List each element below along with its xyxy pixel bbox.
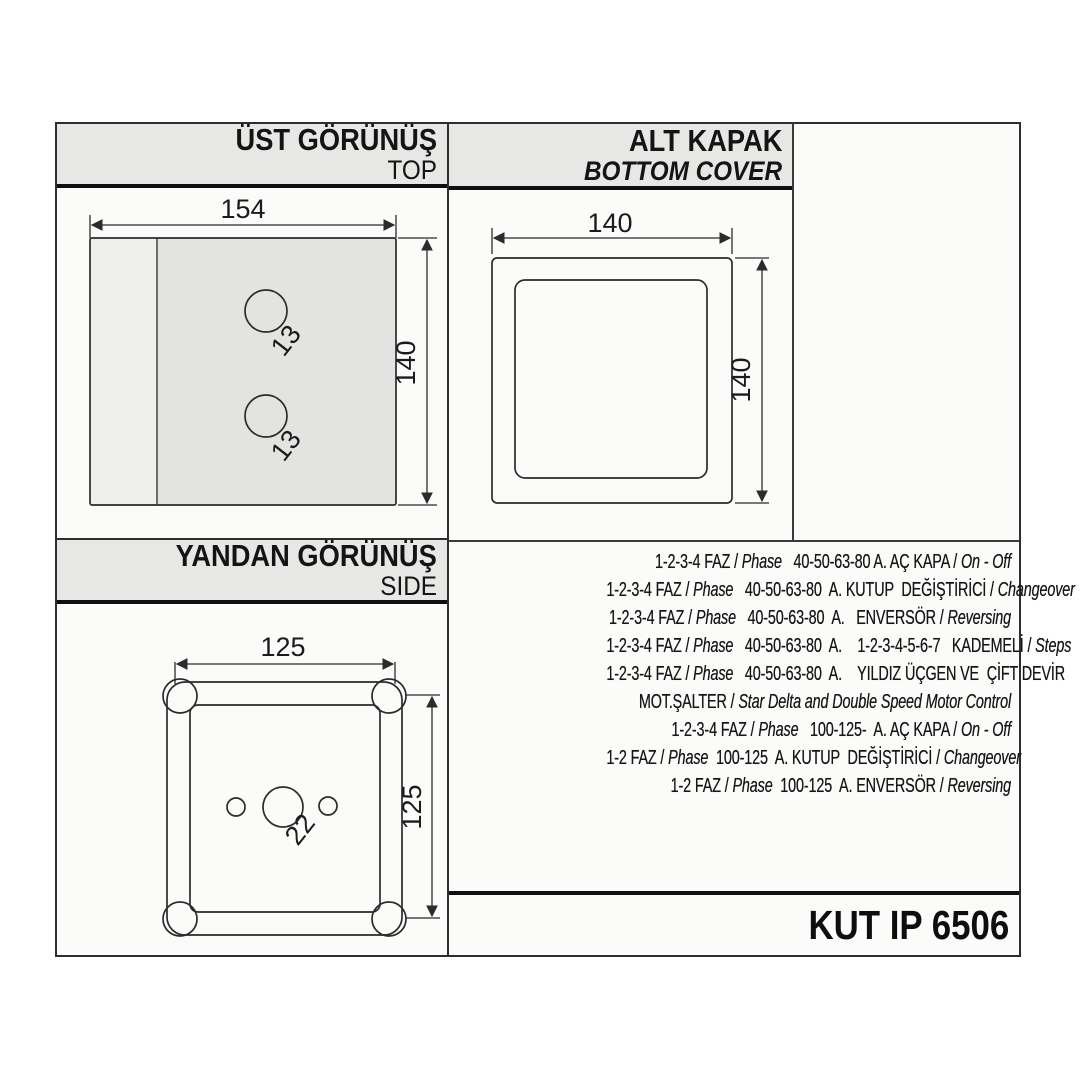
side-view-title: YANDAN GÖRÜNÜŞ xyxy=(176,540,437,572)
side-view-header: YANDAN GÖRÜNÜŞ SIDE xyxy=(57,538,447,604)
spec-lines: 1-2-3-4 FAZ / Phase 40-50-63-80 A. AÇ KA… xyxy=(449,544,1011,888)
bottom-cover-width-label: 140 xyxy=(587,208,632,238)
side-view-width-label: 125 xyxy=(260,632,305,662)
side-view-corner-3 xyxy=(163,902,197,936)
bottom-cover-subtitle: BOTTOM COVER xyxy=(584,157,782,185)
top-view-title: ÜST GÖRÜNÜŞ xyxy=(235,124,437,156)
spec-line: 1-2-3-4 FAZ / Phase 40-50-63-80 A. KUTUP… xyxy=(606,576,1011,604)
spec-line: 1-2-3-4 FAZ / Phase 40-50-63-80 A. YILDI… xyxy=(606,660,1011,688)
spec-line: 1-2 FAZ / Phase 100-125 A. KUTUP DEĞİŞTİ… xyxy=(606,744,1011,772)
model-cell: KUT IP 6506 xyxy=(449,897,1009,953)
side-view-drawing: 22 125 125 xyxy=(55,602,447,955)
side-view-subtitle: SIDE xyxy=(380,572,437,600)
model-label: KUT IP 6506 xyxy=(808,902,1009,949)
spec-sheet: ÜST GÖRÜNÜŞ TOP ALT KAPAK BOTTOM COVER Y… xyxy=(0,0,1080,1080)
side-view-plate xyxy=(190,705,380,912)
bottom-cover-outer xyxy=(492,258,732,503)
spec-line: 1-2 FAZ / Phase 100-125 A. ENVERSÖR / Re… xyxy=(606,772,1011,800)
bottom-cover-drawing: 140 140 xyxy=(449,190,793,540)
bottom-cover-title: ALT KAPAK xyxy=(628,125,782,157)
spec-line: 1-2-3-4 FAZ / Phase 40-50-63-80 A. AÇ KA… xyxy=(606,548,1011,576)
spec-line: 1-2-3-4 FAZ / Phase 40-50-63-80 A. 1-2-3… xyxy=(606,632,1011,660)
bottom-cover-height-label: 140 xyxy=(726,357,756,402)
spec-line: 1-2-3-4 FAZ / Phase 40-50-63-80 A. ENVER… xyxy=(606,604,1011,632)
side-view-frame xyxy=(167,682,402,935)
side-view-corner-4 xyxy=(372,902,406,936)
side-view-small-hole-left xyxy=(227,798,245,816)
top-view-body-main xyxy=(157,238,396,505)
side-view-small-hole-right xyxy=(319,797,337,815)
side-view-hole-label: 22 xyxy=(279,808,321,850)
model-cell-top-border xyxy=(449,891,1019,895)
bottom-cover-inner xyxy=(515,280,707,478)
spec-cell-top-border xyxy=(449,540,1019,542)
top-view-subtitle: TOP xyxy=(387,156,437,184)
top-view-width-label: 154 xyxy=(220,194,265,224)
spec-line: MOT.ŞALTER / Star Delta and Double Speed… xyxy=(606,688,1011,716)
side-view-height-label: 125 xyxy=(397,784,427,829)
top-view-drawing: 13 13 154 140 xyxy=(55,188,447,540)
top-view-header: ÜST GÖRÜNÜŞ TOP xyxy=(57,124,447,188)
bottom-cover-header: ALT KAPAK BOTTOM COVER xyxy=(449,124,792,190)
spec-line: 1-2-3-4 FAZ / Phase 100-125- A. AÇ KAPA … xyxy=(606,716,1011,744)
top-view-height-label: 140 xyxy=(391,340,421,385)
